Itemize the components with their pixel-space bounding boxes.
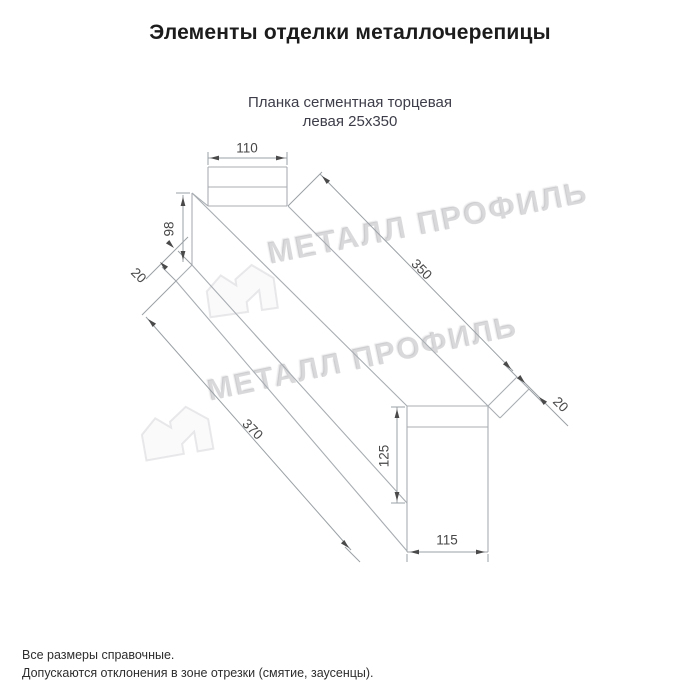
drawing-line [500,389,529,418]
drawing-line [345,547,360,562]
drawing-line [162,267,176,281]
drawing-line [176,281,407,551]
dimension-label: 125 [377,445,392,468]
drawing-line [505,365,517,377]
dimension-arrow [181,197,186,206]
drawing-line [288,206,488,406]
drawing-line [142,281,176,315]
dimension-arrow [166,240,176,250]
dimension-label: 115 [436,533,458,548]
dimension-label: 110 [236,141,258,156]
dimension-arrow [476,550,485,555]
drawing-line [176,265,192,281]
footnote-line2: Допускаются отклонения в зоне отрезки (с… [22,664,374,682]
dimension-arrow [181,251,186,260]
drawing-line [178,251,192,265]
technical-drawing: 110982035020370125115 [0,0,700,700]
dimension-arrow [395,409,400,418]
footnote-line1: Все размеры справочные. [22,646,374,664]
dimension-arrow [276,156,285,161]
drawing-line [288,172,322,206]
dimension-label: 350 [408,256,435,283]
footnotes: Все размеры справочные. Допускаются откл… [22,646,374,682]
drawing-line [192,265,407,503]
dimension-label: 20 [128,265,149,286]
drawing-line [488,406,500,418]
catalog-diagram-page: Элементы отделки металлочерепицы Планка … [0,0,700,700]
drawing-line [488,377,517,406]
drawing-line [192,193,407,406]
dimension-label: 370 [239,416,266,443]
dimension-label: 98 [162,221,177,236]
dimension-arrow [210,156,219,161]
dimension-arrow [395,492,400,501]
dimension-arrow [410,550,419,555]
